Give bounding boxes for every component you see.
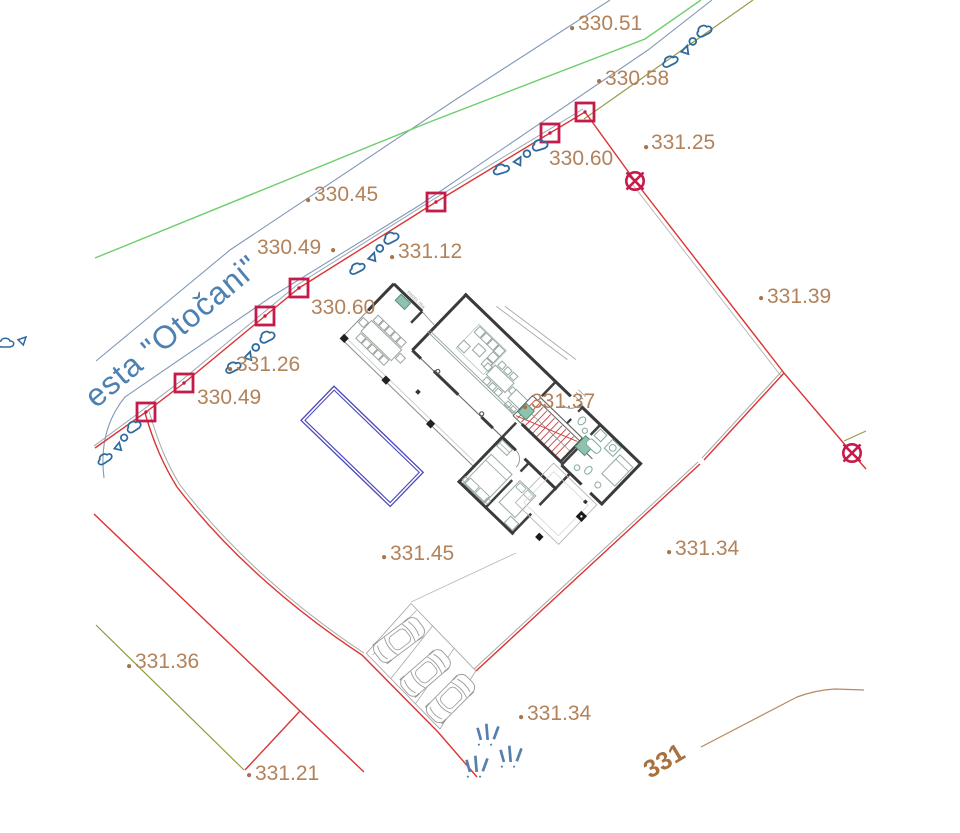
svg-text:331.34: 331.34 bbox=[675, 537, 740, 560]
svg-text:331.21: 331.21 bbox=[255, 762, 319, 785]
svg-text:330.58: 330.58 bbox=[605, 67, 669, 90]
svg-text:331.45: 331.45 bbox=[390, 542, 454, 565]
svg-text:331.12: 331.12 bbox=[398, 240, 462, 263]
svg-text:330.49: 330.49 bbox=[197, 386, 261, 409]
svg-text:331: 331 bbox=[639, 738, 690, 784]
svg-text:331.36: 331.36 bbox=[135, 650, 199, 673]
svg-text:330.49: 330.49 bbox=[257, 236, 321, 259]
svg-text:330.45: 330.45 bbox=[314, 183, 378, 206]
svg-text:331.25: 331.25 bbox=[651, 131, 715, 154]
svg-text:331.26: 331.26 bbox=[236, 353, 300, 376]
svg-text:331.34: 331.34 bbox=[527, 702, 592, 725]
svg-text:330.60: 330.60 bbox=[311, 296, 375, 319]
svg-text:331.39: 331.39 bbox=[767, 285, 831, 308]
svg-text:331.37: 331.37 bbox=[531, 390, 595, 413]
svg-text:330.51: 330.51 bbox=[578, 12, 642, 35]
svg-text:330.60: 330.60 bbox=[549, 147, 613, 170]
